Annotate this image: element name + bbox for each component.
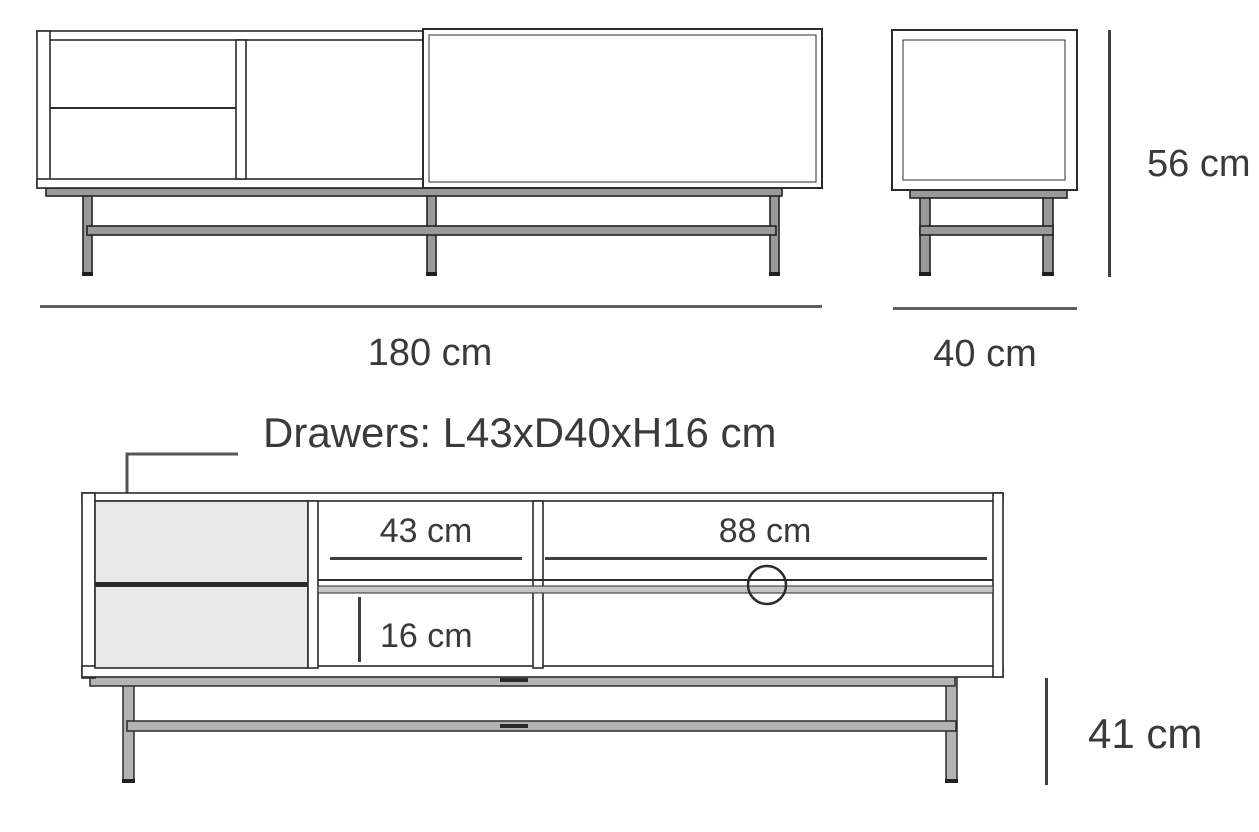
bottom-board: [37, 179, 433, 188]
divider-board: [308, 501, 318, 668]
top-stretcher-rail: [910, 190, 1067, 198]
leg-foot: [919, 272, 931, 276]
side-width-dimension-line: [893, 307, 1077, 310]
leg-foot: [769, 272, 780, 276]
opening-height-dimension-line: [358, 597, 361, 662]
door-width-dimension-line: [545, 557, 987, 560]
front-width-dimension-label: 180 cm: [368, 332, 493, 374]
door-handle-circle: [748, 566, 786, 604]
detail-view-base-frame: [90, 676, 958, 783]
drawers-note-label: Drawers: L43xD40xH16 cm: [263, 409, 777, 456]
leg-height-dimension-line: [1045, 678, 1048, 785]
side-width-dimension-label: 40 cm: [933, 333, 1036, 375]
door-width-dimension-label: 88 cm: [719, 512, 812, 550]
drawer-split-line: [95, 582, 308, 587]
shelf-board: [318, 586, 993, 593]
sliding-door: [423, 29, 822, 188]
rail-joint-mark: [500, 724, 528, 728]
detail-view-carcass: [82, 493, 1003, 678]
diagram-canvas: 180 cm 40 cm 56 cm Drawers: L43xD40xH16 …: [0, 0, 1259, 832]
leg-foot: [945, 779, 958, 783]
height-dimension-line: [1108, 30, 1111, 277]
front-view-base-frame: [46, 188, 782, 276]
leg-height-dimension-label: 41 cm: [1088, 710, 1202, 757]
leg-foot: [122, 779, 135, 783]
height-dimension-label: 56 cm: [1147, 143, 1250, 185]
left-side-board: [82, 493, 95, 678]
leg-foot: [426, 272, 437, 276]
divider-board: [533, 501, 543, 668]
side-view-base-frame: [910, 190, 1067, 276]
rail-joint-mark: [500, 678, 528, 682]
leg-foot: [82, 272, 93, 276]
leg-foot: [1042, 272, 1054, 276]
left-side-board: [37, 31, 50, 188]
lower-stretcher-rail: [920, 226, 1053, 235]
front-width-dimension-line: [40, 305, 822, 308]
furniture-dimension-diagram: 180 cm 40 cm 56 cm Drawers: L43xD40xH16 …: [0, 0, 1259, 832]
opening-height-dimension-label: 16 cm: [380, 617, 473, 655]
side-view: 40 cm 56 cm: [892, 30, 1250, 375]
front-view: 180 cm: [37, 29, 822, 374]
side-panel: [892, 30, 1077, 190]
detail-view: Drawers: L43xD40xH16 cm: [82, 409, 1202, 785]
side-view-carcass: [892, 30, 1077, 190]
lower-stretcher-rail: [87, 226, 776, 235]
right-side-board: [993, 493, 1003, 677]
lower-stretcher-rail: [127, 721, 956, 731]
divider-board: [236, 40, 246, 179]
shelf-width-dimension-line: [330, 557, 522, 560]
top-board: [37, 31, 433, 40]
front-view-carcass: [37, 29, 822, 188]
top-stretcher-rail: [46, 188, 782, 196]
shelf-width-dimension-label: 43 cm: [380, 512, 473, 550]
top-board: [82, 493, 1003, 501]
